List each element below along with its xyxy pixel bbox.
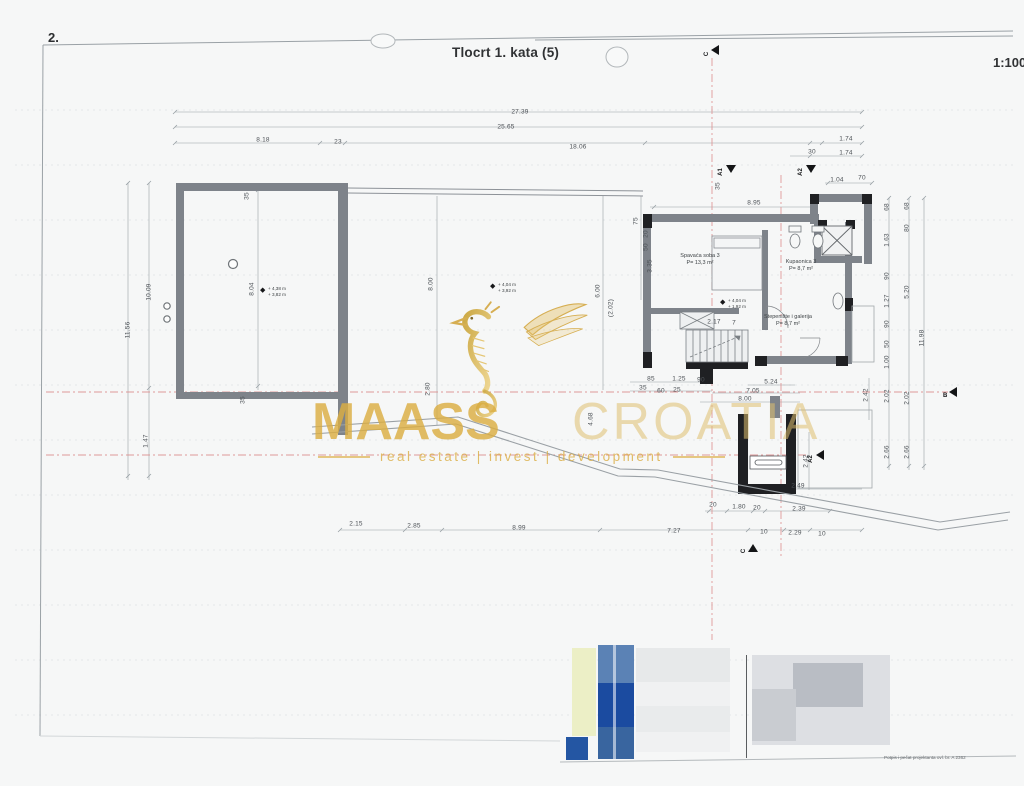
dimension-label: 20 [753,505,761,512]
dimension-label: 1.63 [884,233,891,246]
dimension-label: 2.39 [792,506,805,513]
elevation-marker: ◆+ 4,04 m+ 3,92 m [498,282,516,293]
section-triangle-icon [748,544,758,552]
page-number: 2. [48,30,59,45]
dimension-label: 23 [334,139,342,146]
dimension-label: 2.66 [904,445,911,458]
room-label: Kupaonica 3P= 8,7 m² [786,259,817,273]
section-marker-c: C [742,544,758,554]
dimension-label: 10 [818,531,826,538]
columns [164,260,238,323]
dimension-label: 1.47 [143,434,150,447]
dimension-label: 8.00 [428,277,435,290]
dimension-label: 50 [884,340,891,348]
dimension-label: 1.00 [884,355,891,368]
section-marker-c: C [705,45,719,57]
scanned-floor-plan-sheet: { "page": { "number": "2.", "title": "Tl… [0,0,1024,786]
dimension-label: 1.74 [839,136,852,143]
dimension-label: 1.74 [839,150,852,157]
dimension-label: 68 [904,202,911,210]
dimension-label: 2.29 [788,530,801,537]
elevation-diamond-icon: ◆ [490,283,495,291]
dimension-label: 10 [760,529,768,536]
dimension-label: 7.27 [667,528,680,535]
sink-fixture [833,293,843,309]
dimension-label: 35 [715,182,722,190]
dimension-label: 30 [808,149,816,156]
drawing-title: Tlocrt 1. kata (5) [452,45,559,60]
section-triangle-icon [711,45,719,55]
tagline-rule-left [318,456,370,458]
stamp-note: Potpis i pečat projektanta ovl. br. A 23… [884,755,966,760]
dimension-label: 2.66 [884,445,891,458]
blue-block-divider [613,645,616,759]
shower-fixture [822,226,852,255]
titleblock-yellow-strip [572,648,596,736]
dimension-label: 6.00 [595,284,602,297]
dimension-label: 8.95 [747,200,760,207]
section-marker-a2: A2 [797,165,816,175]
dimension-label: 11.56 [125,322,132,339]
bidet-fixture [812,226,824,248]
dimension-label: 8.04 [249,282,256,295]
redacted-block [752,689,796,741]
dimension-label: 27.39 [511,109,528,116]
dimension-label: (2.02) [608,299,615,317]
dimension-label: 2.02 [904,391,911,404]
dimension-label: 20 [643,230,650,238]
dimension-label: 2.02 [884,389,891,402]
dimension-label: 7 [732,320,736,327]
dimension-label: 2.85 [407,523,420,530]
section-triangle-icon [949,387,957,397]
redacted-row [636,648,730,682]
titleblock-blue-square [566,737,588,760]
room-label: Stepenište i galerijaP= 8,7 m² [764,314,812,328]
dimension-label: 5.20 [904,285,911,298]
dimension-label: 90 [697,377,705,384]
dimension-label: 3.35 [647,259,654,272]
dimension-label: 90 [884,320,891,328]
dimension-label: 1.27 [884,294,891,307]
tagline-rule-right [673,456,725,458]
section-marker-a1: A1 [717,165,736,175]
dimension-label: 1.80 [732,504,745,511]
dimension-label: 90 [884,272,891,280]
dimension-label: 68 [884,203,891,211]
dimension-label: 11.98 [919,330,926,347]
dimension-label: 2.17 [707,319,720,326]
tagline-text: real estate | invest | development [380,449,663,464]
titleblock-redacted-left [636,648,730,752]
titleblock-separator [746,655,747,758]
sheet: 2. Tlocrt 1. kata (5) 1:100 [0,0,1024,786]
toilet-fixture [789,226,801,248]
watermark-tagline: real estate | invest | development [318,449,694,464]
dimension-label: 25.65 [497,124,514,131]
elevation-marker: ◆+ 4,38 m+ 3,82 m [268,286,286,297]
elevation-diamond-icon: ◆ [260,287,265,295]
dimension-label: 2.42 [863,388,870,401]
dimension-label: 70 [858,175,866,182]
dimension-label: 85 [647,376,655,383]
dimension-label: 20 [709,502,717,509]
dimension-label: 2.15 [349,521,362,528]
dimension-label: 8.99 [512,525,525,532]
terrace-edge [348,188,643,196]
dimension-label: 35 [244,192,251,200]
section-triangle-icon [726,165,736,173]
watermark-brand-bold: MAASS [312,392,500,452]
dimension-label: 35 [639,385,647,392]
dimension-label: 75 [633,217,640,225]
elevation-diamond-icon: ◆ [720,299,725,307]
dimension-label: 35 [240,396,247,404]
blue-block-bottom [598,727,634,759]
shaft-detail [750,456,786,469]
dimension-label: 80 [904,224,911,232]
elevation-marker: ◆+ 4,04 m+ 1,92 m [728,298,746,309]
dimension-label: 1.25 [672,376,685,383]
dimension-label: 10.09 [146,283,153,300]
section-marker-b: B [943,387,957,399]
titleblock-redacted-right [752,655,890,745]
drawing-scale: 1:100 [993,55,1024,70]
blue-block-mid [598,683,634,727]
titleblock-blue-logo-column [598,645,634,759]
dimension-label: 1.04 [830,177,843,184]
room-label: Spavaća soba 3P= 13,3 m² [680,253,719,267]
dimension-label: 5.24 [764,379,777,386]
section-triangle-icon [806,165,816,173]
redacted-block [793,663,863,707]
dimension-label: 8.18 [256,137,269,144]
redacted-row [636,706,730,732]
dimension-label: 18.06 [569,144,586,151]
blue-block-top [598,645,634,683]
dimension-label: 2.49 [791,483,804,490]
watermark-brand-light: CROATIA [572,392,820,452]
dimension-label: 50 [643,243,650,251]
